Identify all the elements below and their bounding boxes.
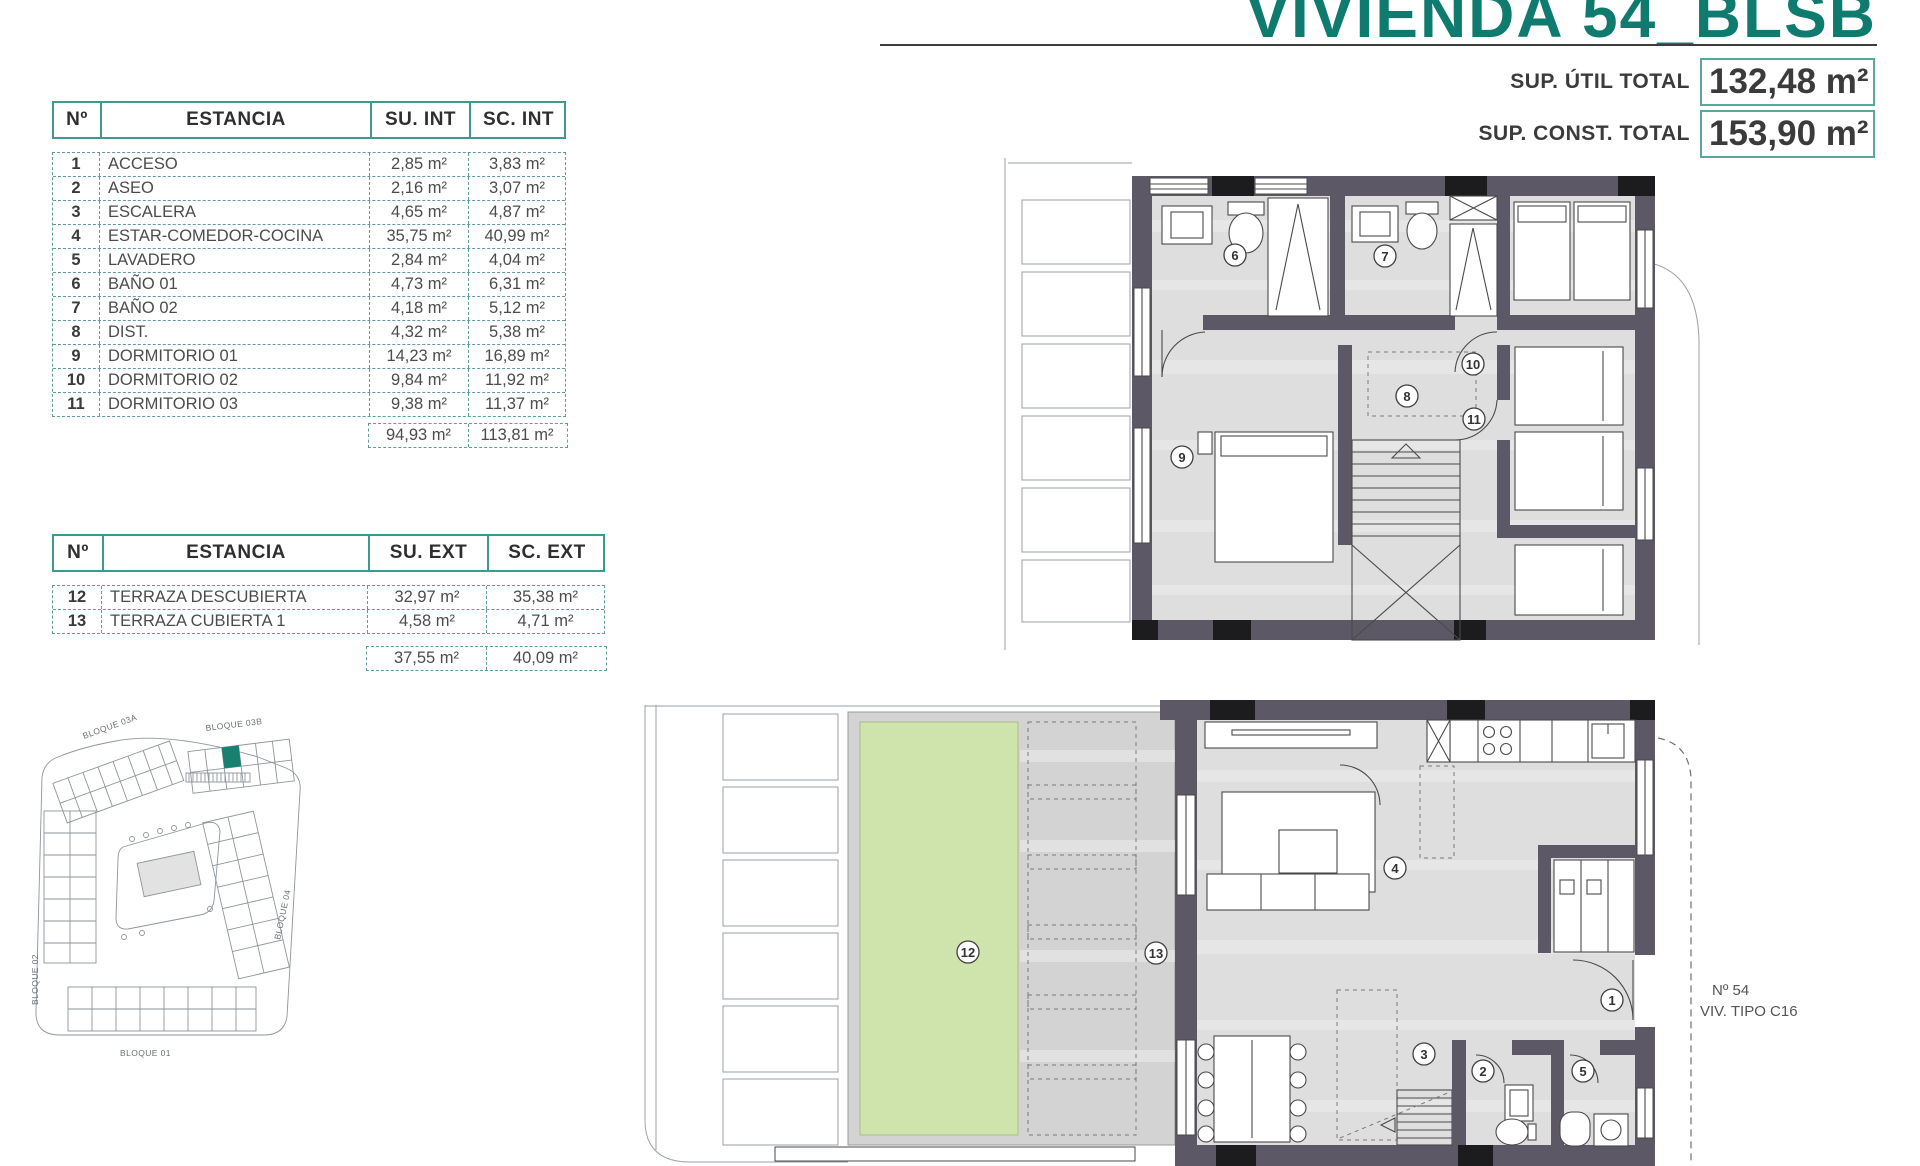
table-row: 7BAÑO 024,18 m²5,12 m²: [53, 297, 565, 321]
site-block-04: [203, 811, 290, 979]
cell-n: 5: [53, 249, 99, 272]
louver-slats: [1022, 200, 1130, 622]
cell-su: 32,97 m²: [367, 586, 486, 609]
svg-text:9: 9: [1178, 450, 1185, 465]
cell-su: 2,84 m²: [369, 249, 468, 272]
col-n: Nº: [54, 536, 102, 570]
room-marker-9: 9: [1171, 446, 1193, 468]
svg-text:10: 10: [1466, 357, 1480, 372]
svg-text:1: 1: [1608, 993, 1615, 1008]
cell-sc: 40,99 m²: [468, 225, 565, 248]
cell-room: DORMITORIO 03: [99, 393, 369, 416]
cell-n: 8: [53, 321, 99, 344]
site-hatch-strip: [186, 773, 250, 782]
parcel-dashed-boundary: [1658, 738, 1691, 1164]
cell-sc: 5,12 m²: [468, 297, 565, 320]
entry-wardrobe: [1554, 860, 1634, 952]
svg-text:7: 7: [1381, 249, 1388, 264]
site-label-bloque-03a: BLOQUE 03A: [81, 715, 138, 741]
interior-areas-table: Nº ESTANCIA SU. INT SC. INT 1ACCESO2,85 …: [52, 101, 566, 417]
cell-su: 4,32 m²: [369, 321, 468, 344]
room-marker-13: 13: [1145, 942, 1167, 964]
cell-su: 35,75 m²: [369, 225, 468, 248]
total-su-int: 94,93 m²: [369, 424, 468, 447]
svg-text:12: 12: [961, 945, 975, 960]
cell-su: 2,16 m²: [369, 177, 468, 200]
bedroom-11-furniture: [1515, 347, 1623, 615]
col-room: ESTANCIA: [100, 103, 370, 137]
cell-n: 4: [53, 225, 99, 248]
interior-table-header: Nº ESTANCIA SU. INT SC. INT: [52, 101, 566, 139]
exterior-areas-table: Nº ESTANCIA SU. EXT SC. EXT 12TERRAZA DE…: [52, 534, 605, 634]
room-marker-2: 2: [1472, 1060, 1494, 1082]
col-su-ext: SU. EXT: [368, 536, 487, 570]
site-block-01: [68, 987, 256, 1031]
cell-sc: 3,07 m²: [468, 177, 565, 200]
plan-sheet: VIVIENDA 54_BLSB SUP. ÚTIL TOTAL 132,48 …: [0, 0, 1920, 1166]
table-row: 11DORMITORIO 039,38 m²11,37 m²: [53, 393, 565, 416]
interior-table-totals: 94,93 m² 113,81 m²: [368, 423, 568, 448]
cell-su: 9,38 m²: [369, 393, 468, 416]
svg-text:2: 2: [1479, 1064, 1486, 1079]
table-row: 9DORMITORIO 0114,23 m²16,89 m²: [53, 345, 565, 369]
cell-room: LAVADERO: [99, 249, 369, 272]
site-block-03b: [186, 739, 294, 793]
table-row: 6BAÑO 014,73 m²6,31 m²: [53, 273, 565, 297]
svg-text:13: 13: [1149, 946, 1163, 961]
cell-n: 9: [53, 345, 99, 368]
total-sc-ext: 40,09 m²: [486, 647, 604, 670]
cell-sc: 4,04 m²: [468, 249, 565, 272]
lavadero-fixtures: [1560, 1112, 1628, 1146]
total-su-ext: 37,55 m²: [367, 647, 486, 670]
unit-type-label: VIV. TIPO C16: [1700, 1003, 1798, 1020]
col-room: ESTANCIA: [102, 536, 368, 570]
cell-n: 7: [53, 297, 99, 320]
col-sc-int: SC. INT: [469, 103, 566, 137]
table-row: 1ACCESO2,85 m²3,83 m²: [53, 153, 565, 177]
cell-su: 2,85 m²: [369, 153, 468, 176]
kitchen-fixtures: [1427, 720, 1635, 762]
table-row: 12TERRAZA DESCUBIERTA32,97 m²35,38 m²: [53, 586, 604, 610]
table-row: 10DORMITORIO 029,84 m²11,92 m²: [53, 369, 565, 393]
ground-floor-plan: Nº 54 VIV. TIPO C16 1 2 3 4 5 12 13: [645, 700, 1798, 1166]
site-label-bloque-04: BLOQUE 04: [272, 889, 292, 941]
table-row: 3ESCALERA4,65 m²4,87 m²: [53, 201, 565, 225]
cell-n: 10: [53, 369, 99, 392]
site-courtyard: [116, 822, 220, 939]
exterior-table-body: 12TERRAZA DESCUBIERTA32,97 m²35,38 m² 13…: [52, 585, 605, 634]
cell-sc: 11,37 m²: [468, 393, 565, 416]
room-marker-1: 1: [1601, 989, 1623, 1011]
cell-n: 1: [53, 153, 99, 176]
cell-room: BAÑO 01: [99, 273, 369, 296]
exterior-table-totals: 37,55 m² 40,09 m²: [366, 646, 607, 671]
room-marker-4: 4: [1384, 857, 1406, 879]
cell-room: ACCESO: [99, 153, 369, 176]
room-marker-3: 3: [1413, 1043, 1435, 1065]
cell-n: 11: [53, 393, 99, 416]
room-marker-5: 5: [1572, 1060, 1594, 1082]
cell-sc: 4,71 m²: [486, 610, 604, 633]
bedroom-9-furniture: [1198, 432, 1333, 562]
svg-text:11: 11: [1467, 412, 1481, 427]
cell-su: 14,23 m²: [369, 345, 468, 368]
cell-n: 12: [53, 586, 101, 609]
cell-room: ASEO: [99, 177, 369, 200]
col-su-int: SU. INT: [370, 103, 469, 137]
cell-sc: 5,38 m²: [468, 321, 565, 344]
table-row: 5LAVADERO2,84 m²4,04 m²: [53, 249, 565, 273]
cell-su: 4,73 m²: [369, 273, 468, 296]
col-sc-ext: SC. EXT: [487, 536, 605, 570]
dining-furniture: [1198, 1036, 1306, 1142]
cell-sc: 3,83 m²: [468, 153, 565, 176]
exterior-table-header: Nº ESTANCIA SU. EXT SC. EXT: [52, 534, 605, 572]
room-marker-11: 11: [1463, 408, 1485, 430]
site-block-02: [44, 811, 96, 963]
floor-plans: 6 7 8 9 10 11: [600, 110, 1920, 1166]
cell-su: 4,18 m²: [369, 297, 468, 320]
table-row: 2ASEO2,16 m²3,07 m²: [53, 177, 565, 201]
svg-text:6: 6: [1231, 248, 1238, 263]
col-n: Nº: [54, 103, 100, 137]
cell-su: 4,58 m²: [367, 610, 486, 633]
cell-room: BAÑO 02: [99, 297, 369, 320]
site-label-bloque-01: BLOQUE 01: [120, 1048, 171, 1058]
site-label-bloque-03b: BLOQUE 03B: [205, 716, 263, 733]
site-plan: BLOQUE 03A BLOQUE 03B BLOQUE 02 BLOQUE 0…: [28, 715, 328, 1075]
unit-number-label: Nº 54: [1712, 982, 1749, 999]
svg-text:3: 3: [1420, 1047, 1427, 1062]
upper-floor-plan: 6 7 8 9 10 11: [1005, 158, 1699, 650]
cell-sc: 4,87 m²: [468, 201, 565, 224]
cell-room: TERRAZA DESCUBIERTA: [101, 586, 367, 609]
cell-room: ESCALERA: [99, 201, 369, 224]
terrace-lawn: [860, 722, 1018, 1135]
svg-text:4: 4: [1391, 861, 1399, 876]
room-marker-10: 10: [1462, 353, 1484, 375]
highlighted-unit: [222, 745, 241, 768]
cell-room: DORMITORIO 01: [99, 345, 369, 368]
cell-sc: 11,92 m²: [468, 369, 565, 392]
terrace-edge-strip: [775, 1147, 1135, 1161]
louver-slats: [723, 714, 838, 1145]
svg-text:8: 8: [1403, 389, 1410, 404]
cell-room: DORMITORIO 02: [99, 369, 369, 392]
room-marker-6: 6: [1224, 244, 1246, 266]
sup-util-value: 132,48 m²: [1700, 58, 1875, 106]
cell-su: 4,65 m²: [369, 201, 468, 224]
room-marker-8: 8: [1396, 385, 1418, 407]
cell-sc: 35,38 m²: [486, 586, 604, 609]
cell-n: 3: [53, 201, 99, 224]
site-label-bloque-02: BLOQUE 02: [30, 954, 40, 1005]
table-row: 13TERRAZA CUBIERTA 14,58 m²4,71 m²: [53, 610, 604, 633]
table-row: 8DIST.4,32 m²5,38 m²: [53, 321, 565, 345]
svg-text:5: 5: [1579, 1064, 1586, 1079]
cell-su: 9,84 m²: [369, 369, 468, 392]
sup-util-label: SUP. ÚTIL TOTAL: [1510, 70, 1690, 94]
cell-sc: 6,31 m²: [468, 273, 565, 296]
title-divider: [880, 44, 1877, 46]
room-marker-12: 12: [957, 941, 979, 963]
cell-room: DIST.: [99, 321, 369, 344]
cell-room: TERRAZA CUBIERTA 1: [101, 610, 367, 633]
total-sc-int: 113,81 m²: [468, 424, 565, 447]
cell-sc: 16,89 m²: [468, 345, 565, 368]
cell-n: 13: [53, 610, 101, 633]
cell-n: 2: [53, 177, 99, 200]
room-marker-7: 7: [1374, 245, 1396, 267]
cell-n: 6: [53, 273, 99, 296]
cell-room: ESTAR-COMEDOR-COCINA: [99, 225, 369, 248]
interior-table-body: 1ACCESO2,85 m²3,83 m² 2ASEO2,16 m²3,07 m…: [52, 152, 566, 417]
table-row: 4ESTAR-COMEDOR-COCINA35,75 m²40,99 m²: [53, 225, 565, 249]
